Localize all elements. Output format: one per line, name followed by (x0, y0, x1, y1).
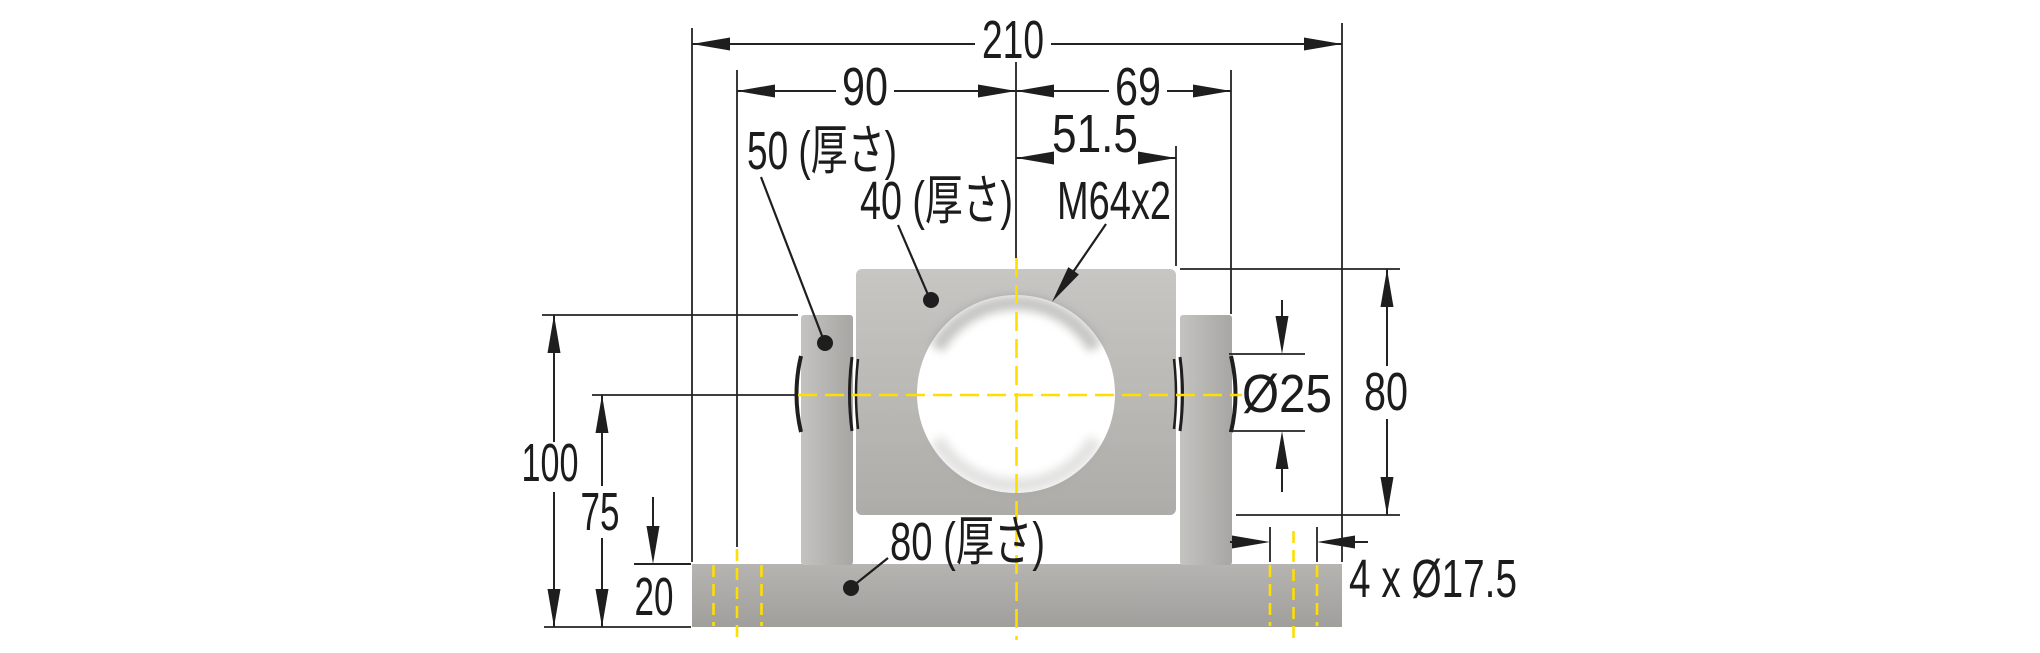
dim-text-overall-width: 210 (982, 10, 1044, 70)
dim-text-lug-top-height: 100 (522, 433, 579, 493)
dim-text-hole-to-center: 90 (842, 57, 888, 117)
label-text-body-thickness: 40 (厚さ) (860, 171, 1013, 231)
label-text-thread-callout: M64x2 (1057, 171, 1171, 231)
dim-pin-diameter: Ø25 (1229, 300, 1332, 492)
dim-text-axis-height: 75 (581, 482, 620, 542)
leader-dot-lug (817, 335, 833, 351)
technical-drawing: 210 90 69 51.5 100 (0, 0, 2040, 653)
dim-text-pin-diameter: Ø25 (1242, 364, 1332, 424)
left-lug (801, 315, 853, 565)
dim-text-center-to-body-edge: 51.5 (1052, 104, 1138, 164)
leader-dot-body (923, 292, 939, 308)
dim-text-body-height: 80 (1364, 362, 1408, 422)
dim-base-height: 20 (634, 497, 691, 627)
leader-dot-base (843, 580, 859, 596)
label-text-base-depth: 80 (厚さ) (890, 512, 1045, 572)
drawing-canvas: 210 90 69 51.5 100 (0, 0, 2040, 653)
dim-text-mount-holes: 4 x Ø17.5 (1349, 549, 1517, 609)
dim-text-base-height: 20 (635, 567, 674, 627)
right-lug (1180, 315, 1232, 565)
